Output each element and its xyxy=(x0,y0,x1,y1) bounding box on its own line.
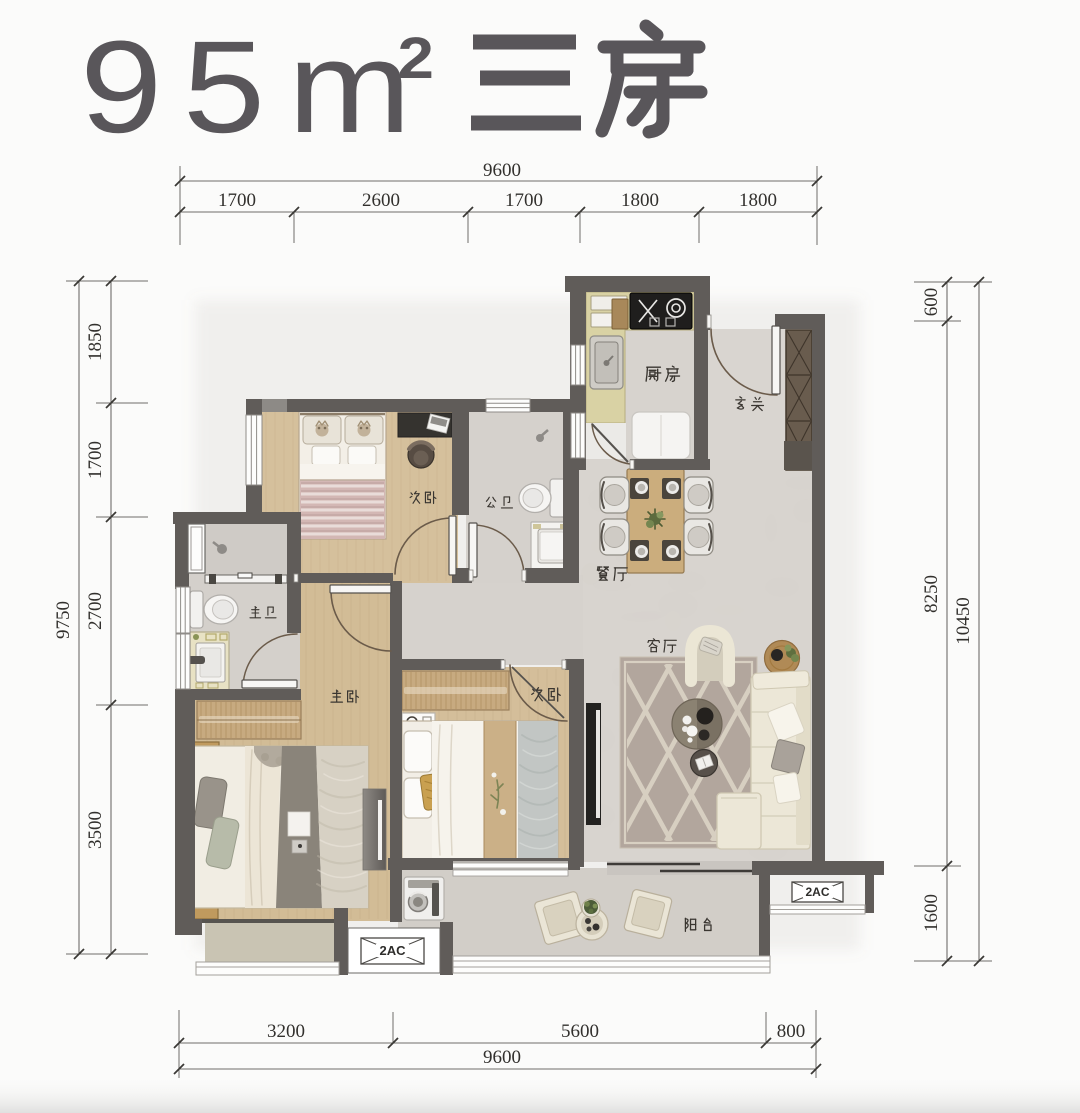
svg-text:1800: 1800 xyxy=(621,190,659,211)
svg-text:1600: 1600 xyxy=(921,894,942,932)
svg-text:1700: 1700 xyxy=(505,190,543,211)
svg-text:m: m xyxy=(288,13,411,160)
svg-text:1700: 1700 xyxy=(85,441,106,479)
svg-text:1850: 1850 xyxy=(85,323,106,361)
svg-text:2700: 2700 xyxy=(85,592,106,630)
svg-text:5600: 5600 xyxy=(561,1021,599,1042)
svg-text:9600: 9600 xyxy=(483,160,521,181)
svg-text:1800: 1800 xyxy=(739,190,777,211)
svg-text:8250: 8250 xyxy=(921,575,942,613)
svg-text:5: 5 xyxy=(183,13,265,160)
svg-text:3200: 3200 xyxy=(267,1021,305,1042)
svg-text:2AC: 2AC xyxy=(379,943,406,958)
svg-text:1700: 1700 xyxy=(218,190,256,211)
svg-text:9: 9 xyxy=(80,13,162,160)
svg-text:600: 600 xyxy=(921,288,942,317)
svg-text:9750: 9750 xyxy=(53,601,74,639)
svg-text:2600: 2600 xyxy=(362,190,400,211)
svg-text:800: 800 xyxy=(777,1021,806,1042)
svg-text:3500: 3500 xyxy=(85,811,106,849)
svg-text:10450: 10450 xyxy=(953,597,974,645)
svg-text:2: 2 xyxy=(398,26,434,91)
svg-text:9600: 9600 xyxy=(483,1047,521,1068)
svg-text:2AC: 2AC xyxy=(805,885,829,899)
